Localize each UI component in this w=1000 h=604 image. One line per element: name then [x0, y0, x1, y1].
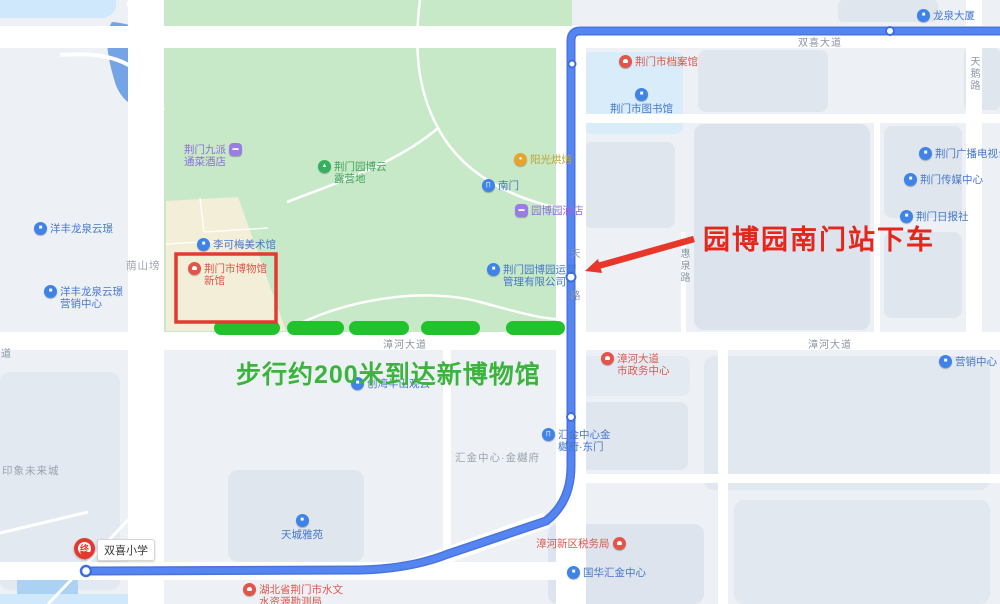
library-icon: ■: [635, 88, 648, 101]
poi-label: 湖北省荆门市水文水资源勘测局: [259, 583, 343, 604]
hotel-icon: ▬: [515, 204, 528, 217]
poi-tax-bureau[interactable]: 漳河新区税务局: [536, 537, 626, 550]
tv-icon: ■: [919, 147, 932, 160]
poi-label: 漳河大道市政务中心: [617, 352, 670, 378]
poi-library[interactable]: ■荆门市图书馆: [610, 88, 673, 115]
poi-label: 洋丰龙泉云璟: [50, 222, 113, 235]
building-icon: ■: [487, 263, 500, 276]
building-icon: ■: [34, 222, 47, 235]
pin-icon: [601, 352, 614, 365]
walking-instruction: 步行约200米到达新博物馆: [236, 355, 541, 391]
poi-label: 园博园酒店: [531, 204, 584, 217]
shuangxi-school-stop[interactable]: 终 双喜小学: [74, 538, 155, 561]
poi-label: 国华汇金中心: [583, 566, 646, 579]
building-icon: ■: [917, 9, 930, 22]
poi-label: 荆门传媒中心: [920, 173, 983, 186]
poi-bakery[interactable]: ●阳光烘焙: [514, 153, 572, 166]
poi-south-gate[interactable]: ∏南门: [482, 179, 519, 192]
poi-likemei-art-museum[interactable]: ■李可梅美术馆: [197, 238, 276, 251]
poi-label: 荆门园博园运营管理有限公司: [503, 263, 577, 289]
poi-label: 阳光烘焙: [530, 153, 572, 166]
gate-icon: ∏: [482, 179, 495, 192]
poi-archives[interactable]: 荆门市档案馆: [619, 55, 698, 68]
pin-icon: [243, 583, 256, 596]
poi-yangfeng-sales-center[interactable]: ■洋丰龙泉云璟营销中心: [44, 285, 123, 311]
map-canvas[interactable]: 双喜大道天鹅路惠泉路漳河大道漳河大道大道天路荫山塝印象未来城汇金中心·金樾府 ▬…: [0, 0, 1000, 604]
shop-icon: ●: [514, 153, 527, 166]
poi-label: 天城雅苑: [281, 528, 323, 541]
poi-label: 汇金中心金樾府·东门: [558, 428, 611, 454]
poi-media-center[interactable]: ■荆门传媒中心: [904, 173, 983, 186]
poi-gov-center[interactable]: 漳河大道市政务中心: [601, 352, 670, 378]
poi-huijin-east-gate[interactable]: ∏汇金中心金樾府·东门: [542, 428, 611, 454]
museum-icon: ■: [197, 238, 210, 251]
poi-label: 荆门市档案馆: [635, 55, 698, 68]
poi-jingmen-museum-new[interactable]: 荆门市博物馆新馆: [188, 262, 267, 288]
poi-hydrology-bureau[interactable]: 湖北省荆门市水文水资源勘测局: [243, 583, 343, 604]
poi-yuanbo-operations[interactable]: ■荆门园博园运营管理有限公司: [487, 263, 577, 289]
poi-label: 荆门广播电视台: [935, 147, 1000, 160]
poi-marketing-center[interactable]: ■营销中心: [939, 355, 997, 368]
building-icon: ■: [939, 355, 952, 368]
poi-label: 洋丰龙泉云璟营销中心: [60, 285, 123, 311]
terminus-pin-icon: 终: [74, 538, 95, 559]
poi-label: 荆门市博物馆新馆: [204, 262, 267, 288]
poi-label: 荆门市图书馆: [610, 102, 673, 115]
poi-label: 漳河新区税务局: [536, 537, 610, 550]
poi-label: 荆门九派通菜酒店: [184, 143, 226, 169]
pin-icon: [619, 55, 632, 68]
poi-label: 营销中心: [955, 355, 997, 368]
terminus-pin-char: 终: [78, 542, 91, 555]
poi-yuanboyuan-hotel[interactable]: ▬园博园酒店: [515, 204, 584, 217]
pin-icon: [188, 262, 201, 275]
poi-layer: ▬荆门九派通菜酒店▲荆门园博云露营地●阳光烘焙∏南门▬园博园酒店■李可梅美术馆荆…: [0, 0, 1000, 604]
terminus-stop-label: 双喜小学: [97, 539, 155, 561]
pin-icon: [613, 537, 626, 550]
gate-icon: ∏: [542, 428, 555, 441]
poi-label: 李可梅美术馆: [213, 238, 276, 251]
poi-longquan-tower[interactable]: ■龙泉大厦: [917, 9, 975, 22]
hotel-icon: ▬: [229, 143, 242, 156]
get-off-instruction: 园博园南门站下车: [703, 218, 935, 257]
poi-tiancheng-yayuan[interactable]: ■天城雅苑: [281, 514, 323, 541]
poi-label: 南门: [498, 179, 519, 192]
poi-broadcast-tv[interactable]: ■荆门广播电视台: [919, 147, 1000, 160]
poi-label: 龙泉大厦: [933, 9, 975, 22]
poi-guohua-huijin[interactable]: ■国华汇金中心: [567, 566, 646, 579]
building-icon: ■: [296, 514, 309, 527]
building-icon: ■: [44, 285, 57, 298]
poi-jiupai-hotel[interactable]: ▬荆门九派通菜酒店: [184, 143, 242, 169]
building-icon: ■: [567, 566, 580, 579]
poi-yangfeng-longquan[interactable]: ■洋丰龙泉云璟: [34, 222, 113, 235]
building-icon: ■: [904, 173, 917, 186]
tent-icon: ▲: [318, 160, 331, 173]
poi-yuanbo-cloud-camp[interactable]: ▲荆门园博云露营地: [318, 160, 387, 186]
poi-label: 荆门园博云露营地: [334, 160, 387, 186]
